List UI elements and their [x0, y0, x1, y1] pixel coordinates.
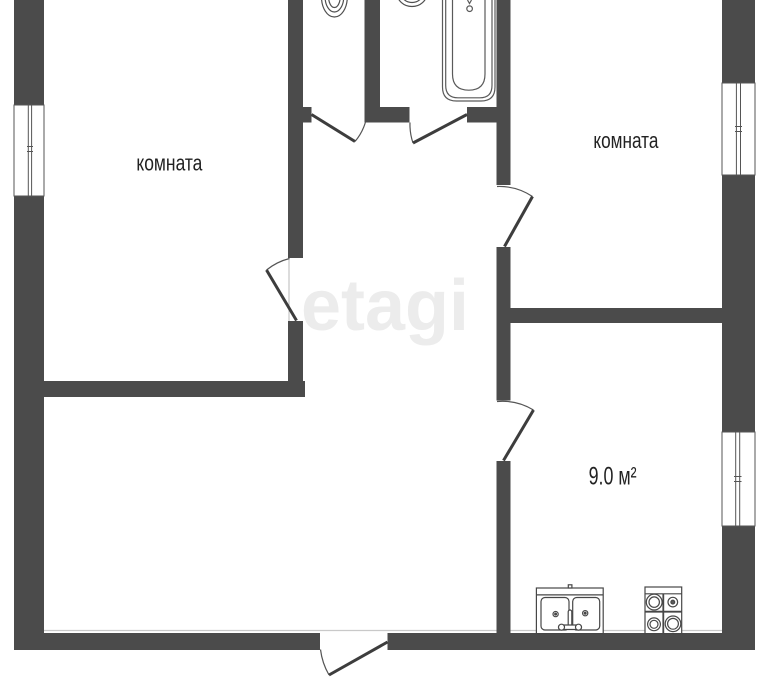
svg-text:9.0 м²: 9.0 м²: [589, 463, 637, 491]
svg-text:etagi: etagi: [301, 266, 469, 346]
svg-text:комната: комната: [593, 128, 658, 153]
svg-text:комната: комната: [136, 151, 202, 176]
